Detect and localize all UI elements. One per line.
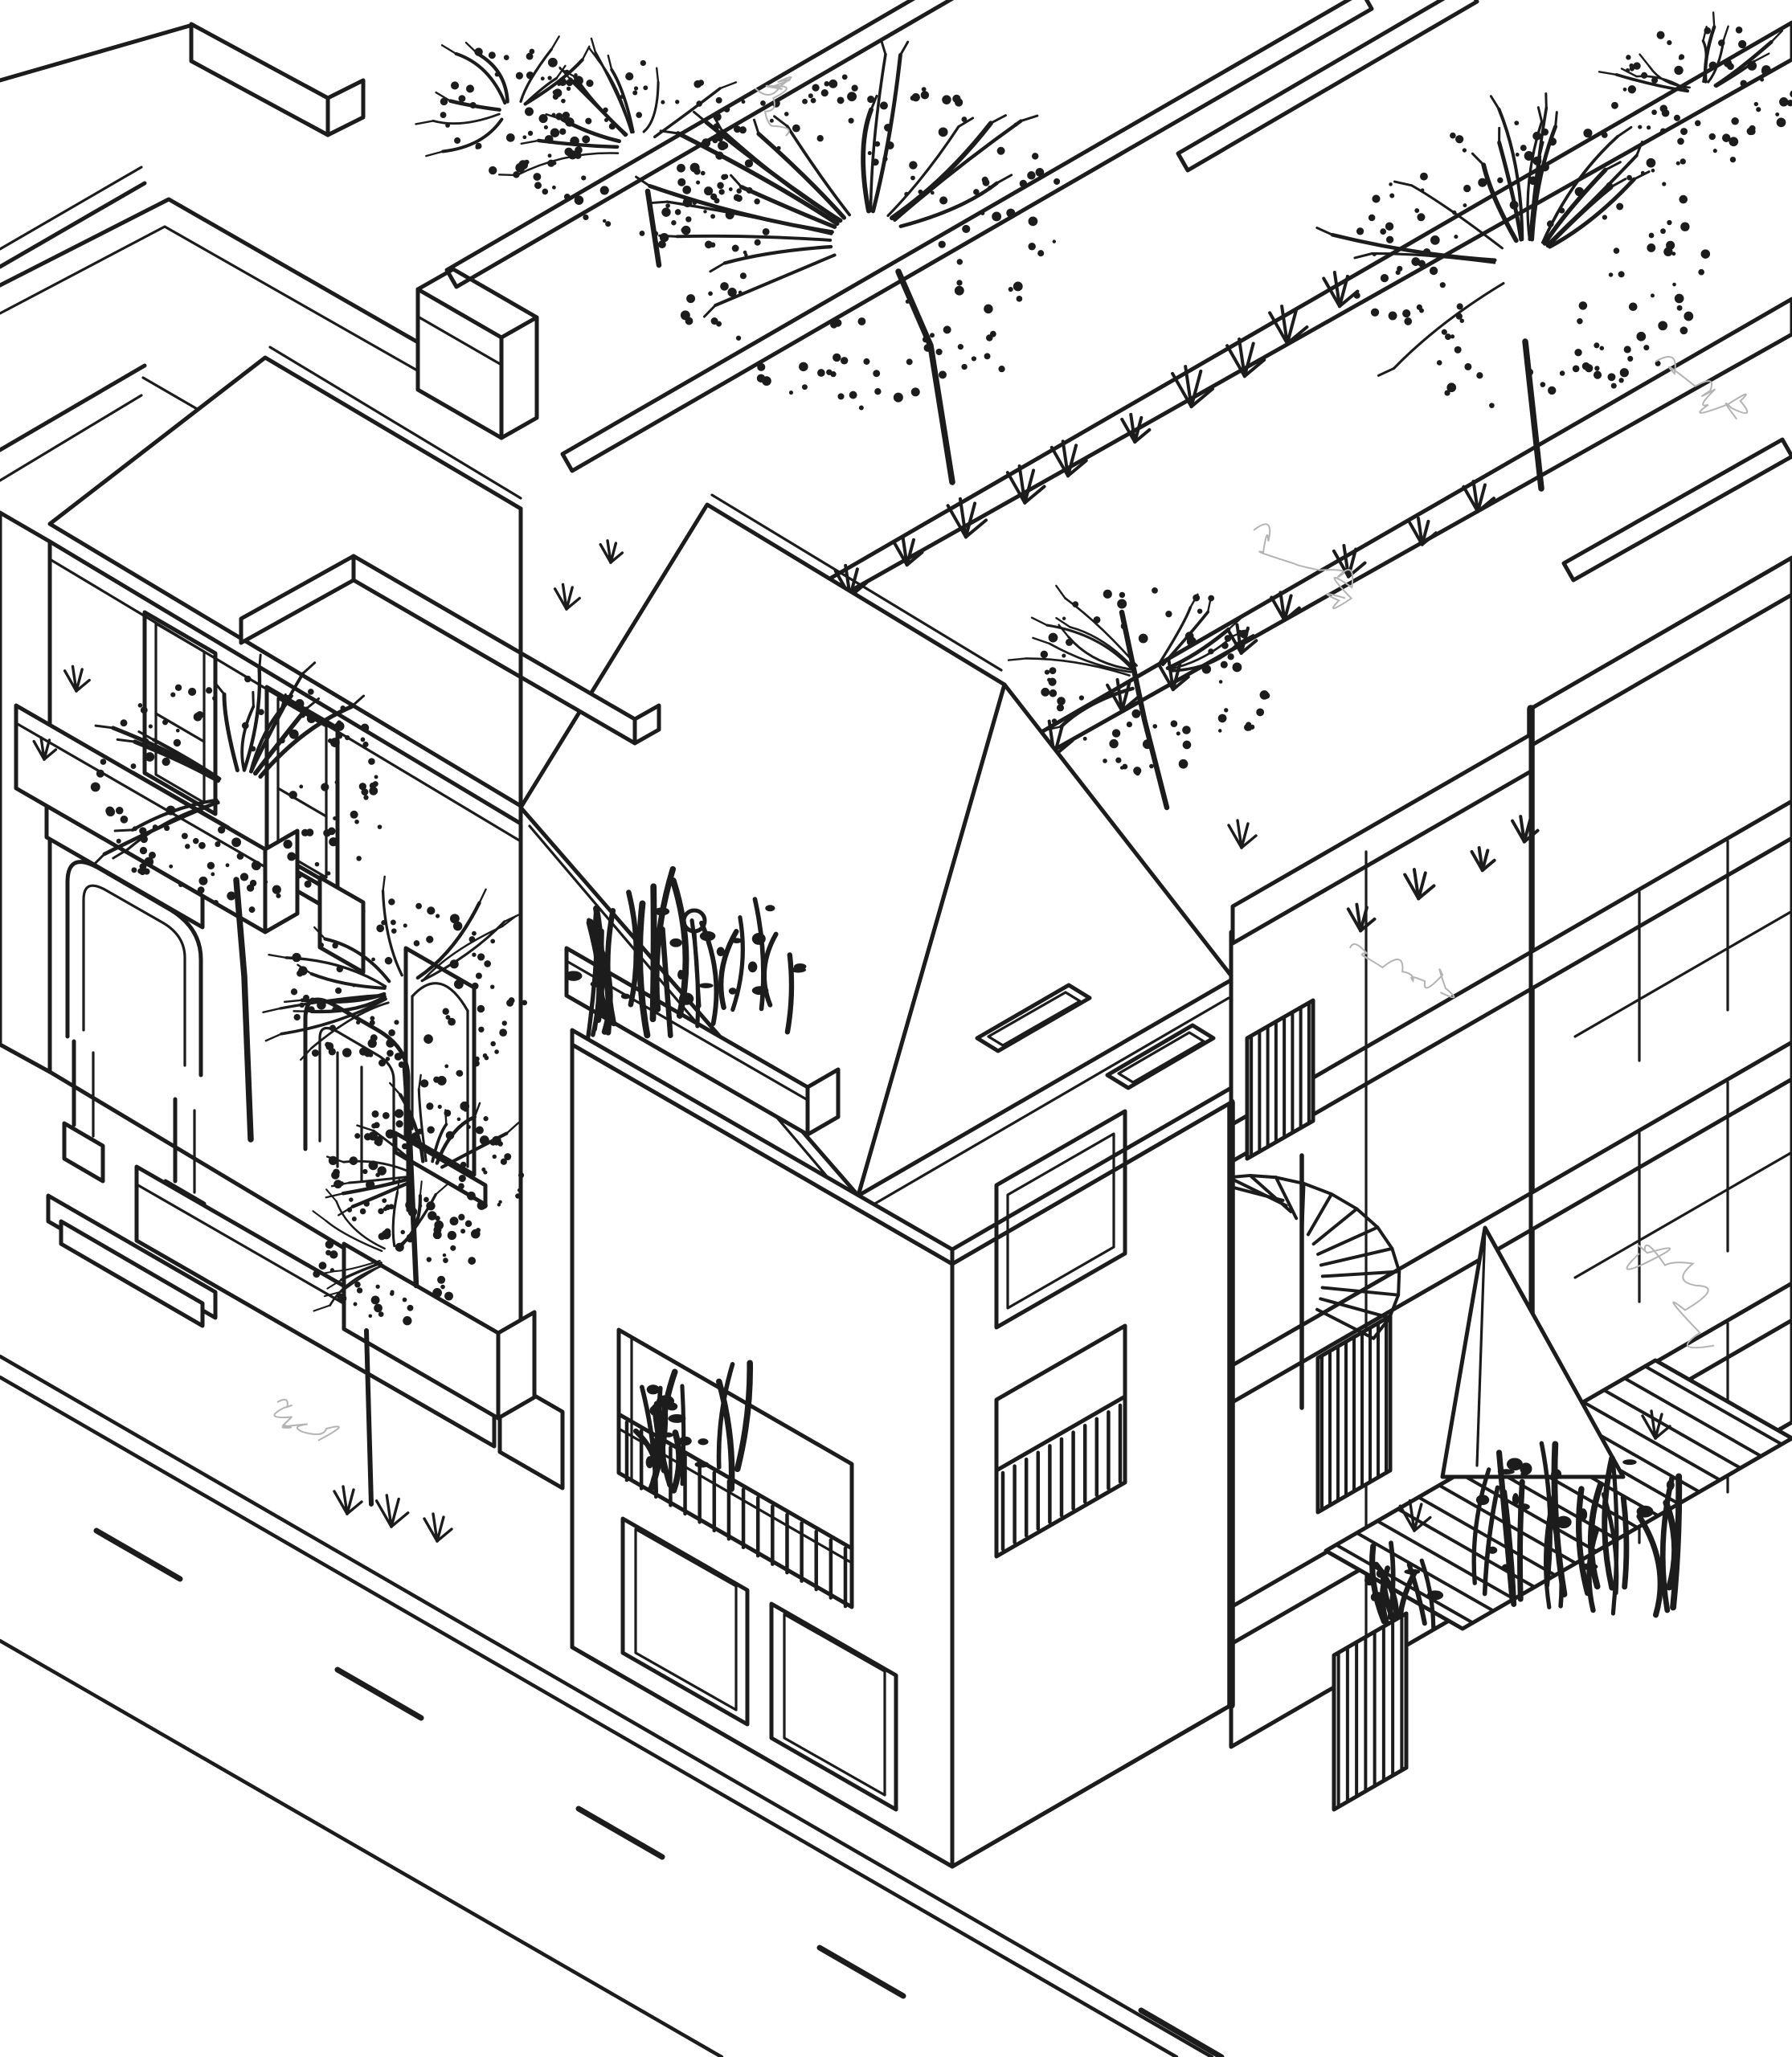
front-wall-1-cap (265, 831, 297, 932)
front-planter-cap (498, 1312, 534, 1418)
victorian-chimney-side (501, 317, 537, 438)
architectural-axonometric-drawing (0, 0, 1792, 2057)
drawing-canvas (0, 0, 1792, 2057)
